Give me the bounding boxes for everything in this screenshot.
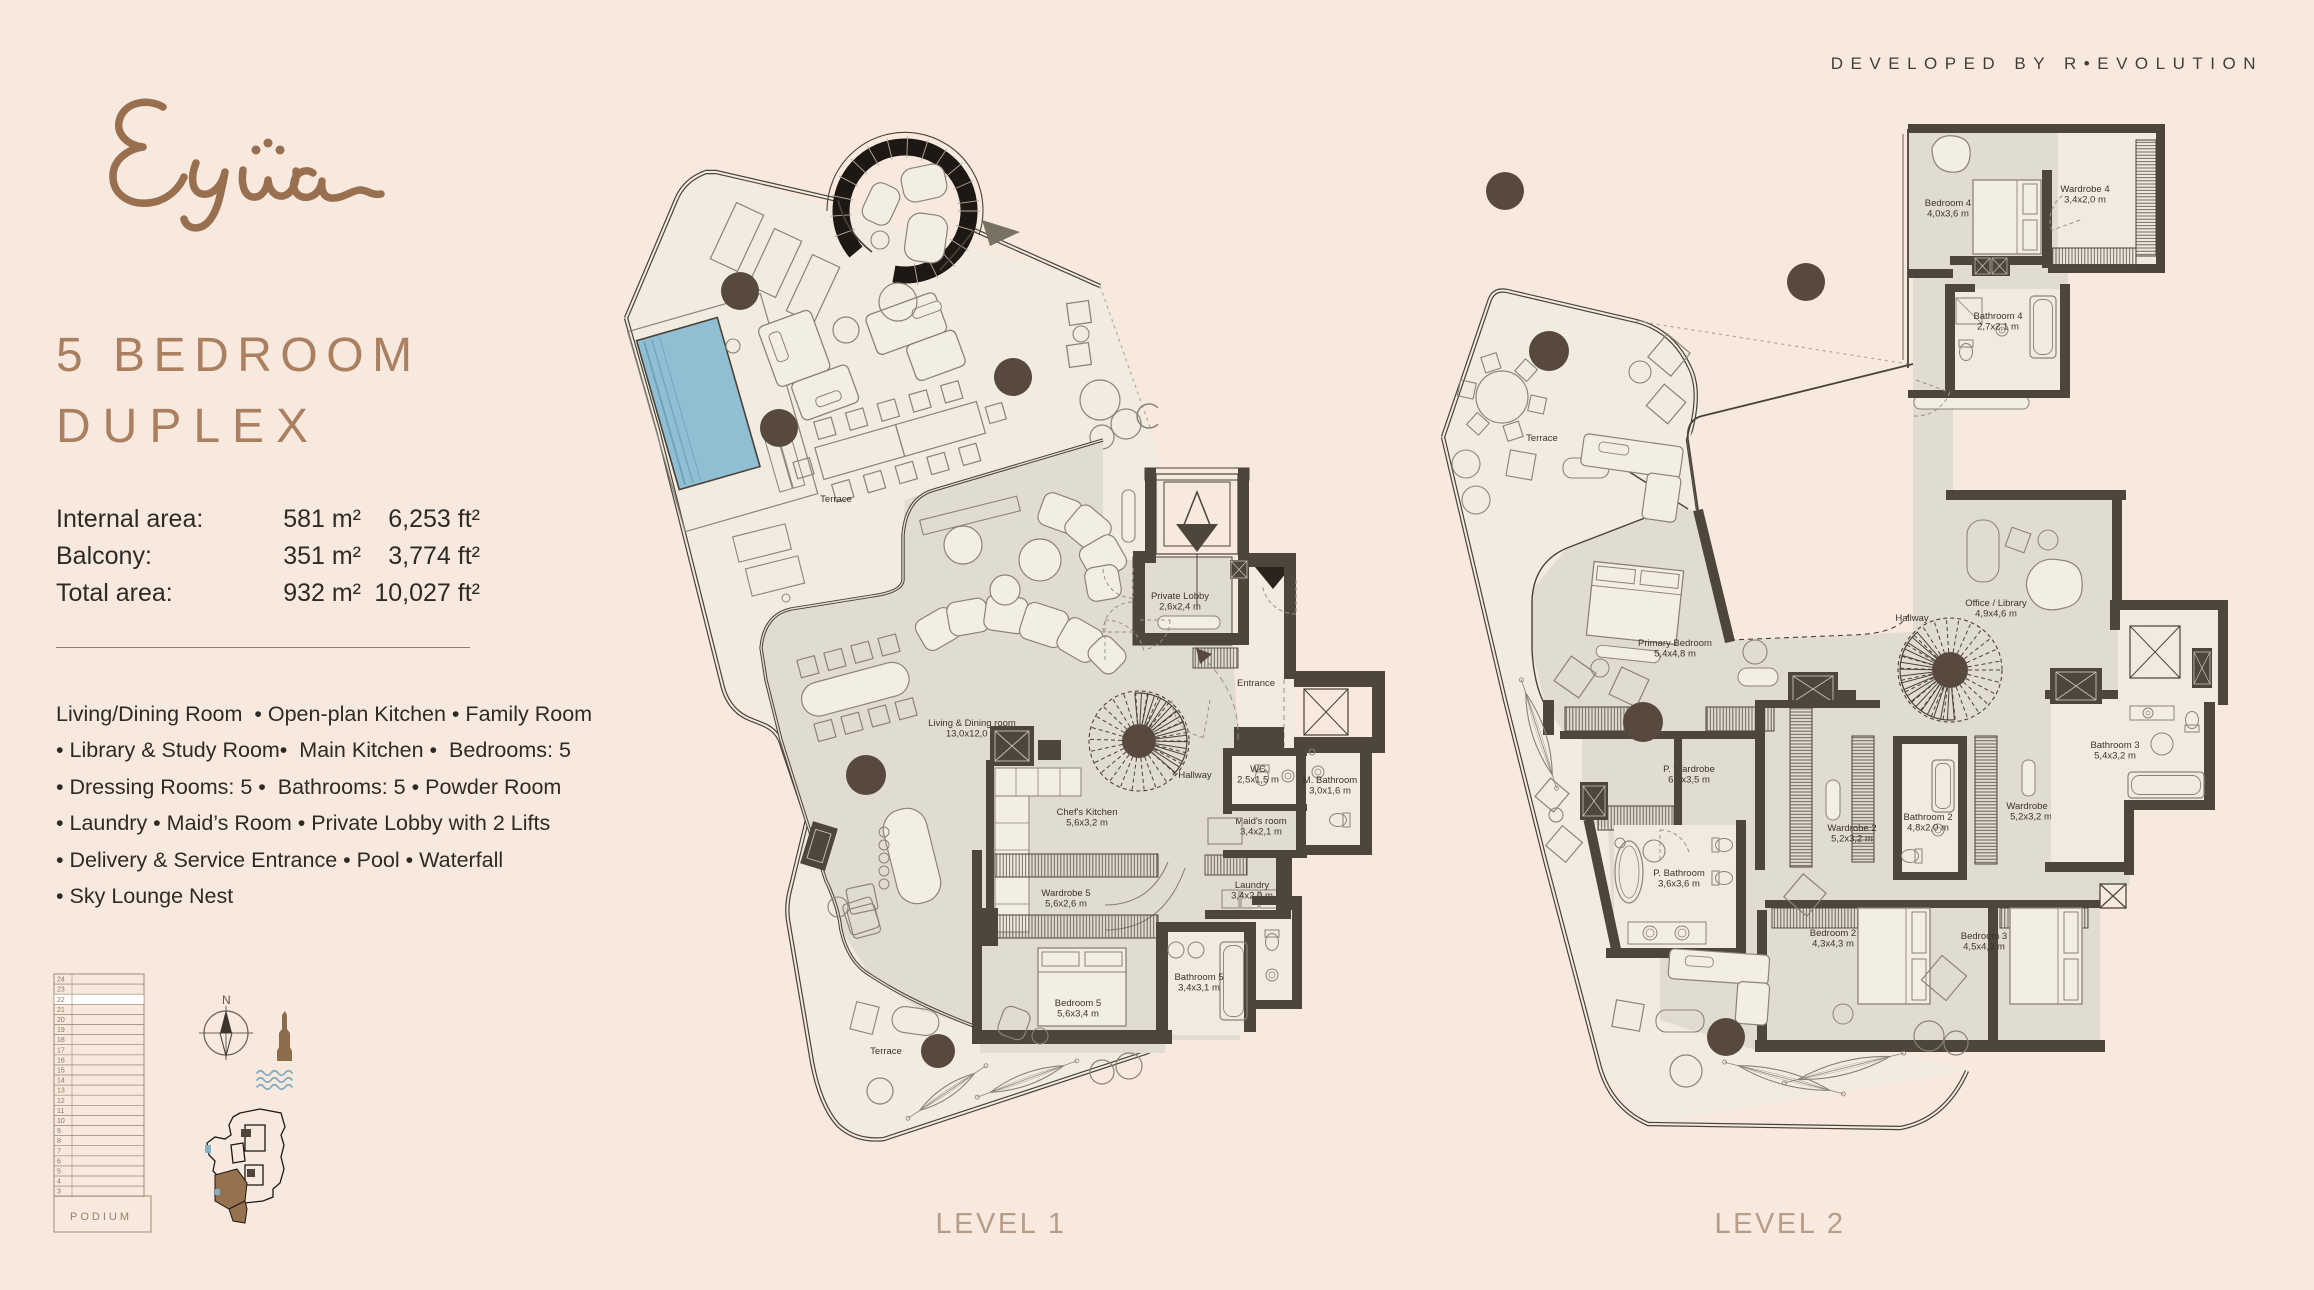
- svg-text:Chef's Kitchen: Chef's Kitchen: [1057, 807, 1118, 818]
- svg-text:3,4x3,1 m: 3,4x3,1 m: [1178, 983, 1220, 994]
- svg-text:Bedroom 5: Bedroom 5: [1055, 998, 1101, 1009]
- svg-text:P. Bathroom: P. Bathroom: [1653, 868, 1705, 879]
- svg-text:P. Wardrobe: P. Wardrobe: [1663, 764, 1715, 775]
- svg-text:Bathroom 3: Bathroom 3: [2090, 740, 2139, 751]
- svg-text:Entrance: Entrance: [1237, 678, 1275, 689]
- svg-text:5,6x3,2 m: 5,6x3,2 m: [1066, 818, 1108, 829]
- svg-text:Terrace: Terrace: [1526, 433, 1558, 444]
- svg-text:Wardrobe 3: Wardrobe 3: [2006, 801, 2055, 812]
- svg-text:3,4x2,1 m: 3,4x2,1 m: [1240, 827, 1282, 838]
- svg-text:4,3x4,3 m: 4,3x4,3 m: [1812, 939, 1854, 950]
- svg-text:5,2x3,2 m: 5,2x3,2 m: [1831, 834, 1873, 845]
- svg-text:2,5x1,5 m: 2,5x1,5 m: [1237, 775, 1279, 786]
- svg-text:4,8x2,0 m: 4,8x2,0 m: [1907, 823, 1949, 834]
- svg-text:Maid's room: Maid's room: [1235, 816, 1287, 827]
- svg-text:Terrace: Terrace: [820, 494, 852, 505]
- svg-text:2,6x2,4 m: 2,6x2,4 m: [1159, 602, 1201, 613]
- svg-text:Laundry: Laundry: [1235, 880, 1270, 891]
- svg-text:5,2x3,2 m: 5,2x3,2 m: [2010, 812, 2052, 823]
- svg-text:5,4x4,8 m: 5,4x4,8 m: [1654, 649, 1696, 660]
- svg-text:4,9x4,6 m: 4,9x4,6 m: [1975, 609, 2017, 620]
- svg-text:M. Bathroom: M. Bathroom: [1303, 775, 1357, 786]
- svg-text:5,4x3,2 m: 5,4x3,2 m: [2094, 751, 2136, 762]
- svg-text:Wardrobe 2: Wardrobe 2: [1827, 823, 1876, 834]
- svg-text:Bedroom 2: Bedroom 2: [1810, 928, 1856, 939]
- svg-text:Office / Library: Office / Library: [1965, 598, 2027, 609]
- svg-text:Bathroom 4: Bathroom 4: [1973, 311, 2022, 322]
- svg-text:3,0x1,6 m: 3,0x1,6 m: [1309, 786, 1351, 797]
- svg-text:Bathroom 5: Bathroom 5: [1174, 972, 1223, 983]
- svg-text:Hallway: Hallway: [1178, 770, 1212, 781]
- svg-text:5,6x3,4 m: 5,6x3,4 m: [1057, 1009, 1099, 1020]
- svg-text:3,4x2,0 m: 3,4x2,0 m: [2064, 195, 2106, 206]
- svg-text:WC: WC: [1250, 764, 1266, 775]
- svg-text:Wardrobe 5: Wardrobe 5: [1041, 888, 1090, 899]
- svg-text:Bedroom 3: Bedroom 3: [1961, 931, 2007, 942]
- svg-text:Primary Bedroom: Primary Bedroom: [1638, 638, 1712, 649]
- svg-text:Private Lobby: Private Lobby: [1151, 591, 1209, 602]
- svg-text:Bedroom 4: Bedroom 4: [1925, 198, 1971, 209]
- svg-text:5,6x2,6 m: 5,6x2,6 m: [1045, 899, 1087, 910]
- svg-text:4,5x4,3 m: 4,5x4,3 m: [1963, 942, 2005, 953]
- svg-text:4,0x3,6 m: 4,0x3,6 m: [1927, 209, 1969, 220]
- svg-text:Hallway: Hallway: [1895, 613, 1929, 624]
- svg-text:Bathroom 2: Bathroom 2: [1903, 812, 1952, 823]
- svg-text:3,6x3,6 m: 3,6x3,6 m: [1658, 879, 1700, 890]
- svg-text:Terrace: Terrace: [870, 1046, 902, 1057]
- svg-text:Wardrobe 4: Wardrobe 4: [2060, 184, 2109, 195]
- svg-text:2,7x2,1 m: 2,7x2,1 m: [1977, 322, 2019, 333]
